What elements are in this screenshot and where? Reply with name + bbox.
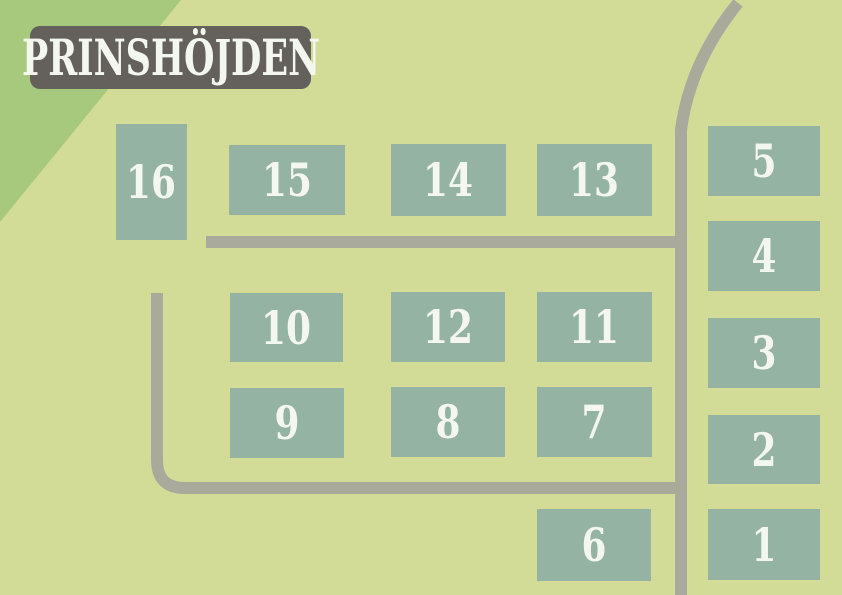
lot-8-label: 8 <box>436 399 461 445</box>
lot-7: 7 <box>537 387 652 457</box>
title-badge: PRINSHÖJDEN <box>30 26 311 89</box>
lot-9: 9 <box>230 388 344 458</box>
lot-6-label: 6 <box>582 522 607 568</box>
lot-4-label: 4 <box>752 233 777 279</box>
lot-4: 4 <box>708 221 820 291</box>
lot-16: 16 <box>116 124 187 240</box>
lot-9-label: 9 <box>275 400 300 446</box>
site-map: PRINSHÖJDEN 16 15 14 13 12 11 10 9 8 7 6… <box>0 0 842 595</box>
lot-1: 1 <box>708 509 820 580</box>
lot-11-label: 11 <box>570 304 620 350</box>
lot-5: 5 <box>708 126 820 196</box>
lot-6: 6 <box>537 509 651 581</box>
lot-8: 8 <box>391 387 505 457</box>
lot-14: 14 <box>391 144 506 216</box>
main-road <box>681 3 738 595</box>
lot-5-label: 5 <box>752 138 777 184</box>
lot-10-label: 10 <box>262 305 312 351</box>
lot-2-label: 2 <box>752 427 777 473</box>
lot-7-label: 7 <box>582 399 607 445</box>
lot-16-label: 16 <box>127 159 177 205</box>
lot-13: 13 <box>537 144 652 216</box>
lot-2: 2 <box>708 415 820 484</box>
lot-3-label: 3 <box>752 330 777 376</box>
lot-1-label: 1 <box>752 522 777 568</box>
lot-15-label: 15 <box>262 157 312 203</box>
lot-13-label: 13 <box>570 157 620 203</box>
lot-12: 12 <box>391 292 505 362</box>
lot-10: 10 <box>230 293 343 362</box>
page-title: PRINSHÖJDEN <box>21 33 319 83</box>
lot-12-label: 12 <box>423 304 473 350</box>
lot-11: 11 <box>537 292 652 362</box>
lot-15: 15 <box>229 145 345 215</box>
lot-3: 3 <box>708 318 820 388</box>
lot-14-label: 14 <box>424 157 474 203</box>
